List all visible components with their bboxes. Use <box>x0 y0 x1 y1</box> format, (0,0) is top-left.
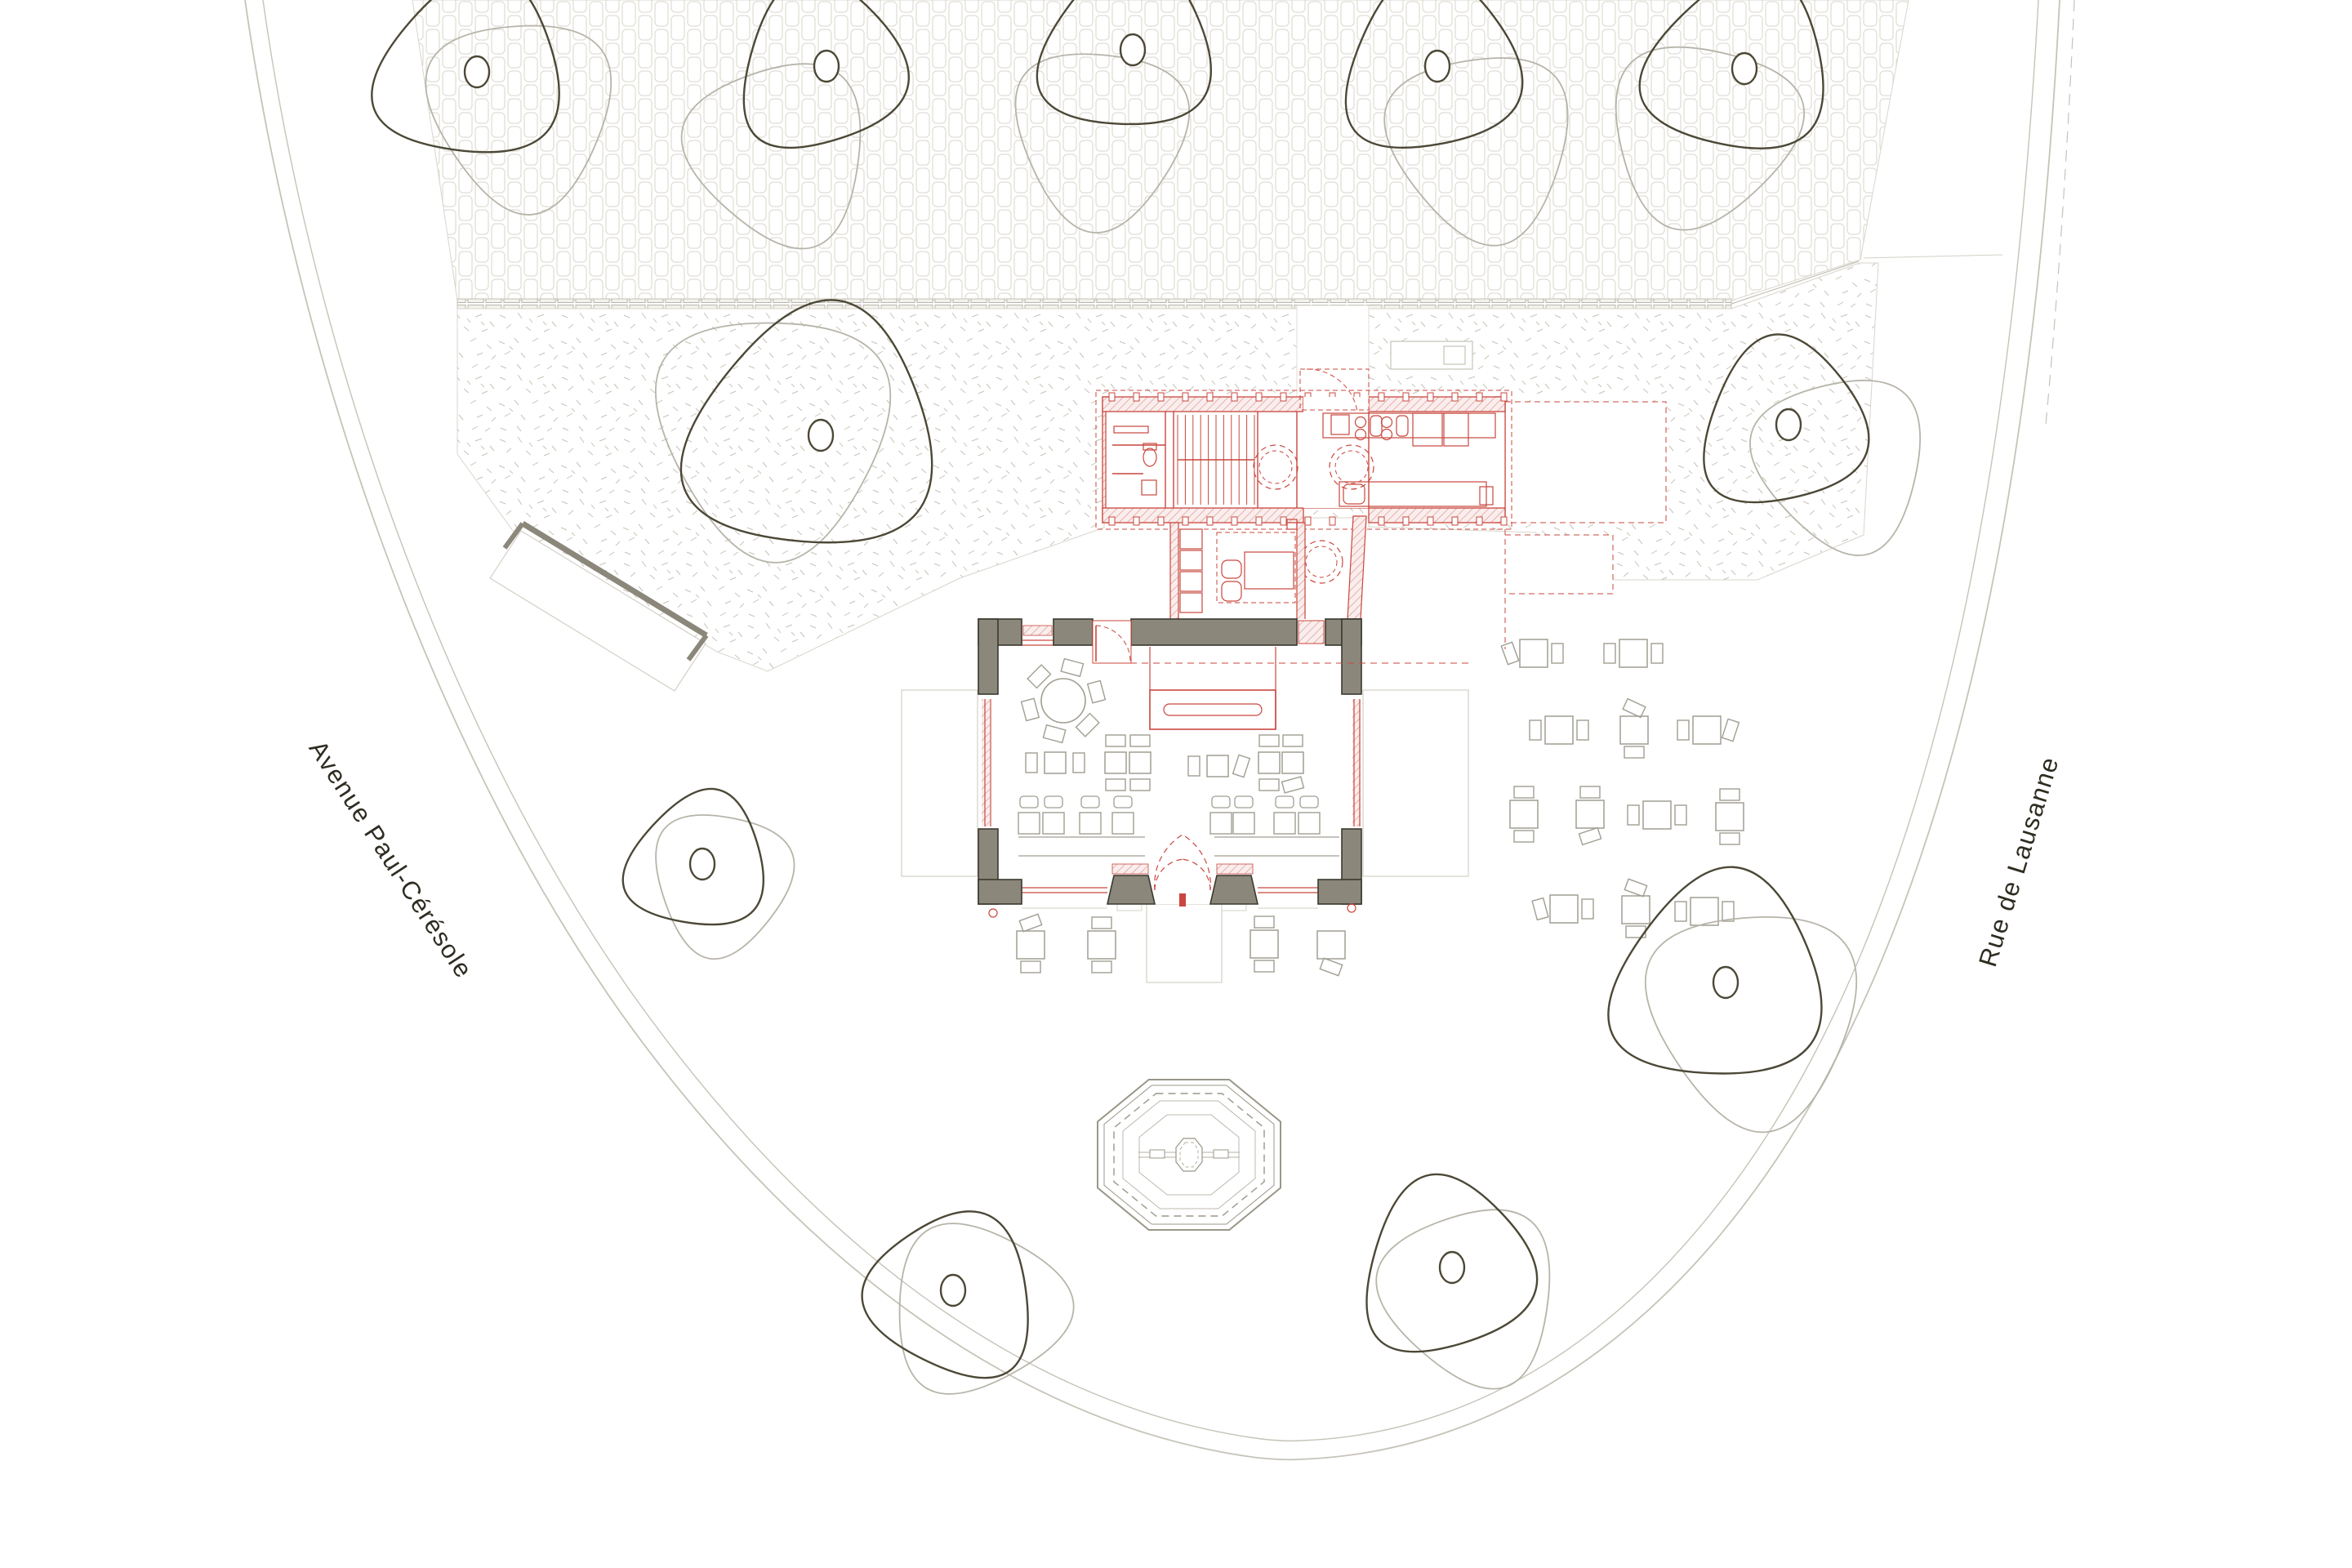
chair <box>1624 879 1646 896</box>
annex-wall-north <box>1102 397 1303 412</box>
edge-line <box>1864 255 2002 258</box>
chair <box>1720 833 1739 844</box>
chair <box>1530 720 1541 740</box>
table <box>1317 931 1345 959</box>
table <box>1207 755 1228 777</box>
chair <box>1624 746 1644 758</box>
annex-wall-north <box>1369 397 1505 412</box>
street-label-avenue: Avenue Paul-Cérésole <box>304 735 479 983</box>
masonry-wall <box>978 880 1022 904</box>
table <box>1622 896 1650 924</box>
cladding-tick <box>1452 517 1458 525</box>
link-table <box>1245 552 1294 589</box>
cladding-tick <box>1134 393 1139 401</box>
cladding-tick <box>1477 517 1482 525</box>
table <box>1545 716 1573 744</box>
site-plan-drawing: Avenue Paul-Cérésole Rue de Lausanne <box>0 0 2352 1568</box>
stool <box>1222 581 1241 601</box>
cladding-tick <box>1403 393 1409 401</box>
window-sill <box>1023 626 1052 635</box>
cladding-tick <box>1183 517 1188 525</box>
cladding-tick <box>1403 517 1409 525</box>
table <box>1520 639 1548 667</box>
tree-trunk <box>814 51 839 82</box>
annex-wall-south <box>1102 508 1303 523</box>
terrace-east <box>1363 690 1468 876</box>
chair <box>1092 917 1111 929</box>
chair <box>1580 786 1600 798</box>
chair <box>1651 644 1663 663</box>
cladding-tick <box>1109 393 1115 401</box>
chair <box>1320 958 1342 975</box>
terrace-west <box>902 690 978 876</box>
chair <box>1677 720 1689 740</box>
cladding-tick <box>1158 517 1164 525</box>
masonry-wall <box>1342 619 1361 694</box>
chair <box>1722 902 1734 921</box>
tree <box>862 1211 1074 1394</box>
table <box>1620 716 1648 744</box>
chair <box>1092 961 1111 973</box>
window-sill <box>1217 864 1253 874</box>
table <box>1017 931 1045 959</box>
banquette-table <box>1080 813 1101 834</box>
cladding-tick <box>1232 393 1237 401</box>
paved-plaza <box>412 0 1909 309</box>
tree-trunk <box>808 420 833 451</box>
chair <box>1577 720 1588 740</box>
planting-circle-dashed <box>1300 541 1343 583</box>
tree-canopy-outline-light <box>656 815 794 959</box>
chair <box>1579 828 1601 845</box>
planting-circle-dashed <box>1306 546 1337 577</box>
table <box>1693 716 1721 744</box>
cladding-tick <box>1207 517 1213 525</box>
banquette-table <box>1043 813 1064 834</box>
chair <box>1623 699 1646 718</box>
cladding-tick <box>1501 517 1507 525</box>
equipment-box <box>1444 346 1465 364</box>
banquette-table <box>1112 813 1134 834</box>
cladding-tick <box>1305 517 1311 525</box>
chair <box>1675 805 1686 825</box>
masonry-wall <box>978 619 998 694</box>
tree-canopy-outline-light <box>1646 917 1856 1133</box>
banquette-table <box>1233 813 1254 834</box>
table <box>1250 930 1278 958</box>
window-sill <box>982 699 990 826</box>
tree-canopy-outline-light <box>1376 1209 1549 1388</box>
drain <box>1347 904 1356 912</box>
table <box>1716 803 1744 831</box>
battered-pier <box>1107 875 1155 904</box>
tree-canopy-outline-light <box>900 1223 1074 1394</box>
tree-trunk <box>1776 409 1801 440</box>
stool <box>1222 560 1241 578</box>
cladding-tick <box>1501 393 1507 401</box>
table <box>1105 752 1126 773</box>
cladding-tick <box>1158 393 1164 401</box>
tree-trunk <box>1440 1252 1464 1283</box>
entry-step <box>1117 904 1142 911</box>
wardrobe-bay <box>1180 529 1202 549</box>
cladding-tick <box>1109 517 1115 525</box>
tree-trunk <box>1713 967 1738 998</box>
masonry-wall <box>1318 880 1361 904</box>
entry-step <box>1222 904 1246 911</box>
tree-trunk <box>465 56 489 87</box>
plaza-curb <box>457 299 1731 309</box>
table <box>1643 801 1671 829</box>
cladding-tick <box>1428 393 1433 401</box>
battered-pier <box>1210 875 1258 904</box>
table <box>1129 752 1151 773</box>
tree-trunk <box>690 849 715 880</box>
plaza-paving <box>412 0 1909 301</box>
chair <box>1514 786 1534 798</box>
tree-trunk <box>1120 34 1145 65</box>
annex-wall-south <box>1369 508 1505 523</box>
chair <box>1722 719 1739 741</box>
street-label-rue: Rue de Lausanne <box>1973 753 2065 970</box>
kitchen-pass <box>1298 621 1324 644</box>
lot-line-dashed <box>2046 0 2074 425</box>
chair <box>1021 961 1040 973</box>
table <box>1045 752 1066 773</box>
entry-slab <box>1147 904 1222 982</box>
masonry-wall <box>1131 619 1297 645</box>
cladding-tick <box>1281 393 1286 401</box>
cladding-tick <box>1207 393 1213 401</box>
chair <box>1604 644 1615 663</box>
table <box>1510 800 1538 828</box>
banquette-table <box>1018 813 1040 834</box>
chair <box>1552 644 1563 663</box>
tree <box>623 789 795 959</box>
cladding-tick <box>1134 517 1139 525</box>
banquette-table <box>1210 813 1232 834</box>
tree-trunk <box>1732 53 1757 84</box>
wardrobe-bay <box>1180 572 1202 591</box>
window-sill <box>1112 864 1148 874</box>
table <box>1550 895 1578 923</box>
awning-dashed-southeast <box>1505 535 1613 594</box>
chair <box>1582 899 1593 919</box>
chair <box>1254 916 1274 928</box>
fountain-bracket <box>1214 1150 1228 1158</box>
cladding-tick <box>1281 517 1286 525</box>
banquette-table <box>1298 813 1320 834</box>
cladding-tick <box>1330 517 1335 525</box>
tree-trunk <box>941 1275 965 1306</box>
chair <box>1019 914 1041 931</box>
chair <box>1501 642 1518 664</box>
chair <box>1532 898 1548 920</box>
cladding-tick <box>1477 393 1482 401</box>
chair <box>1675 902 1686 921</box>
fountain-bracket <box>1150 1150 1165 1158</box>
chair <box>1628 805 1639 825</box>
chair <box>1254 960 1274 972</box>
link-wall-east <box>1297 523 1305 621</box>
link-wall-west <box>1170 523 1178 621</box>
cladding-tick <box>1256 517 1262 525</box>
door-post <box>1179 893 1186 906</box>
cladding-tick <box>1183 393 1188 401</box>
masonry-wall <box>1053 619 1093 645</box>
table <box>1088 931 1116 959</box>
table <box>1576 800 1604 828</box>
table <box>1282 752 1303 773</box>
cladding-tick <box>1232 517 1237 525</box>
tree <box>1366 1174 1549 1389</box>
cladding-tick <box>1379 517 1384 525</box>
nw-door <box>1093 621 1131 663</box>
table <box>1258 752 1280 773</box>
cladding-tick <box>1428 517 1433 525</box>
chair <box>1720 789 1739 800</box>
awning-dashed-east <box>1505 402 1666 523</box>
banquette-table <box>1274 813 1295 834</box>
wardrobe-bay <box>1180 550 1202 570</box>
drain <box>989 909 997 917</box>
cladding-tick <box>1379 393 1384 401</box>
chair <box>1514 831 1534 842</box>
cladding-tick <box>1452 393 1458 401</box>
wardrobe-bay <box>1180 593 1202 612</box>
cladding-tick <box>1256 393 1262 401</box>
tree-trunk <box>1425 51 1450 82</box>
table <box>1619 639 1647 667</box>
fountain <box>1098 1080 1281 1230</box>
walkway <box>1297 305 1369 403</box>
